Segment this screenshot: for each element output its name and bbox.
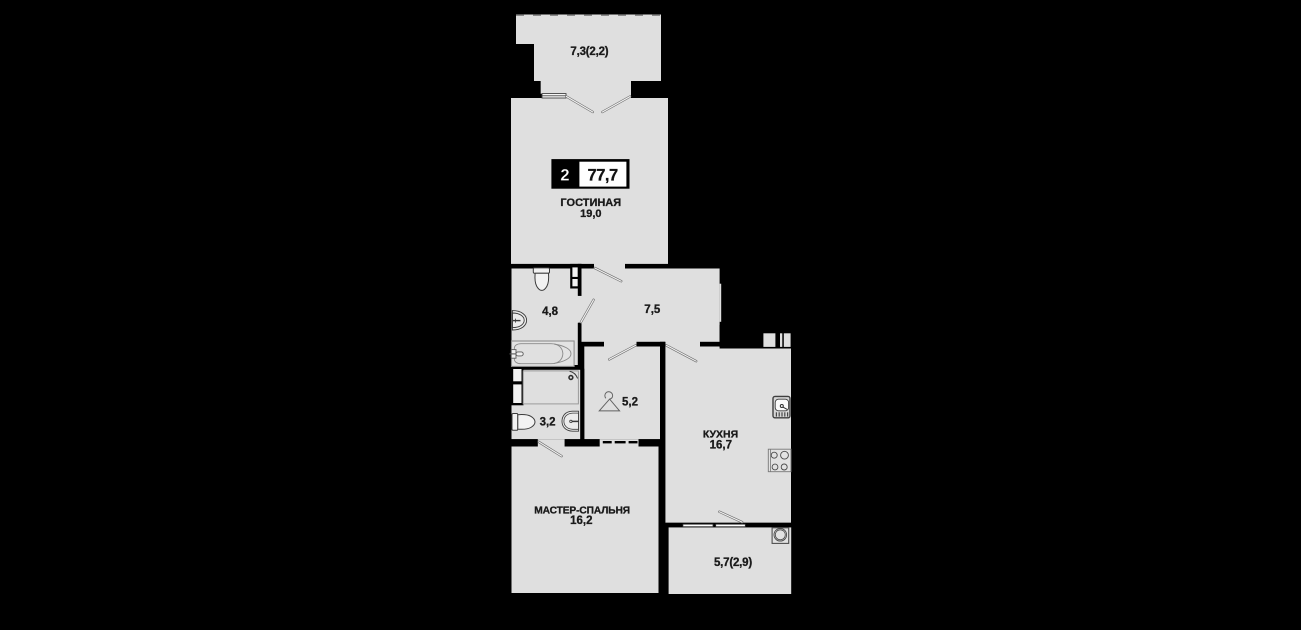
svg-text:16,7: 16,7	[710, 439, 732, 451]
svg-text:7,3(2,2): 7,3(2,2)	[570, 46, 608, 58]
svg-text:5,2: 5,2	[622, 397, 638, 409]
svg-text:7,5: 7,5	[644, 304, 661, 316]
svg-text:5,7(2,9): 5,7(2,9)	[714, 557, 752, 569]
svg-text:77,7: 77,7	[588, 166, 618, 184]
svg-text:16,2: 16,2	[570, 515, 592, 527]
svg-text:4,8: 4,8	[542, 306, 559, 318]
svg-text:19,0: 19,0	[580, 208, 601, 220]
svg-text:2: 2	[560, 166, 569, 184]
svg-text:3,2: 3,2	[540, 417, 556, 429]
